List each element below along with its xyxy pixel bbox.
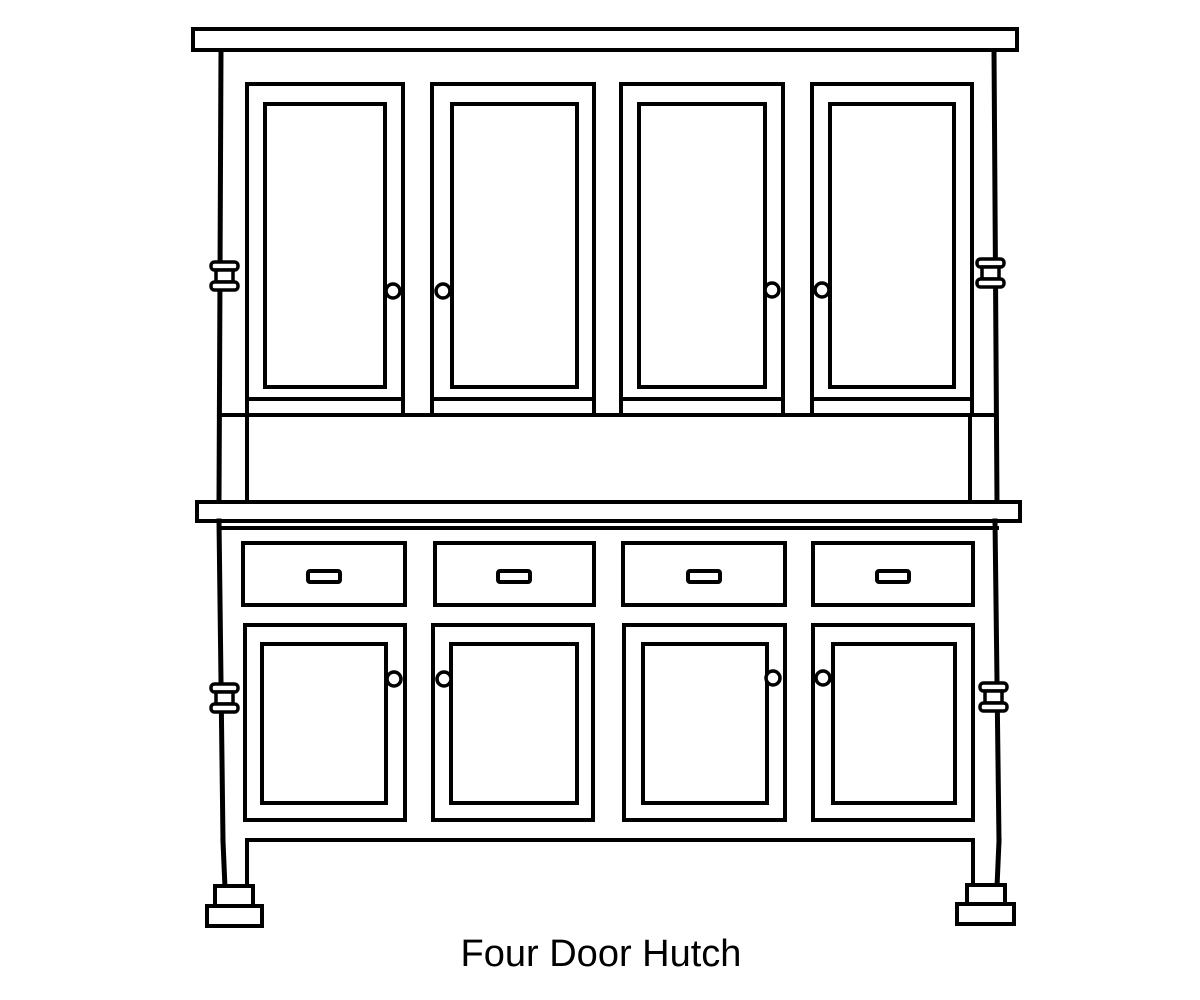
upper-door-1 [247, 84, 403, 415]
upper-door-3 [621, 84, 783, 415]
door-knob-icon [766, 671, 780, 685]
door-knob-icon [436, 284, 450, 298]
drawer-pull-icon [688, 571, 720, 582]
upper-door-4-panel [830, 104, 954, 387]
drawer-4 [813, 543, 973, 605]
caption-label: Four Door Hutch [461, 933, 742, 975]
left-foot [207, 886, 262, 926]
lower-door-3 [624, 625, 785, 820]
door-knob-icon [437, 672, 451, 686]
illustration-canvas: Four Door Hutch [0, 0, 1200, 1000]
top-section [193, 29, 1017, 503]
left-foot-lower-block [207, 906, 262, 926]
upper-door-3-panel [639, 104, 765, 387]
left-leg-outer-edge [223, 841, 225, 888]
door-knob-icon [765, 283, 779, 297]
peg-waist [216, 692, 233, 704]
door-knob-icon [816, 671, 830, 685]
right-leg-outer-edge [997, 841, 999, 887]
lower-door-2-panel [451, 644, 577, 803]
peg-bottom-flange [980, 703, 1007, 711]
drawer-3 [623, 543, 785, 605]
side-peg-lower-left [211, 684, 238, 712]
side-peg-upper-left [211, 262, 238, 290]
upper-door-2-panel [452, 104, 577, 387]
counter-top [197, 502, 1020, 521]
door-knob-icon [815, 283, 829, 297]
base-section [207, 521, 1014, 926]
lower-door-3-panel [643, 644, 767, 803]
lower-door-2-frame [433, 625, 593, 820]
open-shelf-niche [247, 417, 970, 502]
right-leg [973, 840, 999, 887]
upper-door-1-frame [247, 84, 403, 415]
upper-door-4-frame [812, 84, 972, 415]
lower-door-2 [433, 625, 593, 820]
peg-bottom-flange [977, 279, 1004, 287]
lower-door-4-frame [813, 625, 973, 820]
peg-waist [216, 270, 233, 282]
upper-door-1-panel [265, 104, 385, 387]
lower-door-4 [813, 625, 973, 820]
crown-molding [193, 29, 1017, 50]
drawer-2 [435, 543, 594, 605]
peg-waist [982, 267, 999, 279]
drawer-1 [243, 543, 405, 605]
lower-door-1 [245, 625, 405, 820]
left-leg [223, 840, 247, 888]
drawer-pull-icon [308, 571, 340, 582]
lower-door-4-panel [833, 644, 955, 803]
lower-left-post [219, 521, 223, 841]
upper-door-3-frame [621, 84, 783, 415]
side-peg-upper-right [977, 259, 1004, 287]
peg-bottom-flange [211, 704, 238, 712]
side-peg-lower-right [980, 683, 1007, 711]
drawer-pull-icon [498, 571, 530, 582]
left-foot-upper-block [215, 886, 253, 907]
hutch-line-drawing: Four Door Hutch [0, 0, 1200, 1000]
lower-right-post [995, 521, 999, 841]
lower-door-1-frame [245, 625, 405, 820]
door-knob-icon [386, 284, 400, 298]
upper-door-2 [432, 84, 594, 415]
upper-door-2-frame [432, 84, 594, 415]
upper-door-4 [812, 84, 972, 415]
drawer-pull-icon [877, 571, 909, 582]
lower-door-1-panel [262, 644, 386, 803]
right-foot [957, 885, 1014, 924]
peg-bottom-flange [211, 282, 238, 290]
right-foot-lower-block [957, 904, 1014, 924]
lower-door-3-frame [624, 625, 785, 820]
peg-waist [985, 691, 1002, 703]
door-knob-icon [387, 672, 401, 686]
